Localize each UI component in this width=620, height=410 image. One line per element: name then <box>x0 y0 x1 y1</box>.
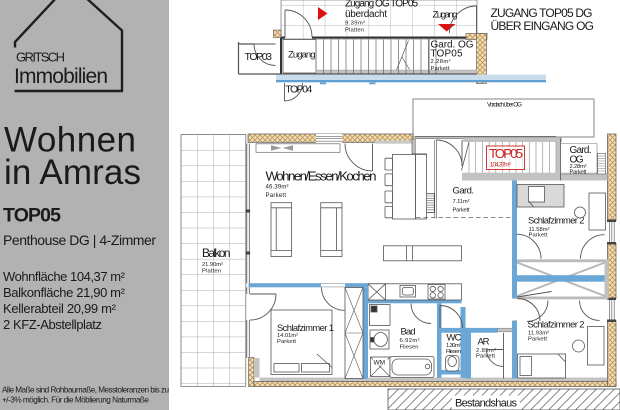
svg-text:Wohnfläche 104,37 m²: Wohnfläche 104,37 m² <box>3 269 126 284</box>
svg-text:TOP05: TOP05 <box>3 205 61 227</box>
svg-text:WM: WM <box>374 360 386 367</box>
svg-text:Parkett: Parkett <box>266 193 287 199</box>
svg-text:Balkonfläche 21,90 m²: Balkonfläche 21,90 m² <box>3 285 126 300</box>
svg-text:6.92m²: 6.92m² <box>400 338 420 344</box>
svg-text:Platten: Platten <box>345 27 364 33</box>
svg-text:Platten: Platten <box>202 268 221 274</box>
svg-text:Parkett: Parkett <box>453 208 470 214</box>
svg-text:Schlafzimmer 1: Schlafzimmer 1 <box>277 322 334 333</box>
svg-text:2.28m²: 2.28m² <box>431 59 451 65</box>
svg-text:Vordach über OG: Vordach über OG <box>487 102 522 109</box>
svg-text:Immobilien: Immobilien <box>14 65 108 88</box>
svg-text:GRITSCH: GRITSCH <box>16 50 66 65</box>
svg-text:überdacht: überdacht <box>345 9 387 20</box>
svg-text:ZUGANG TOP05 DG: ZUGANG TOP05 DG <box>491 6 593 20</box>
svg-text:TOP05: TOP05 <box>431 48 463 59</box>
svg-text:Wohnen/Essen/Kochen: Wohnen/Essen/Kochen <box>266 169 377 184</box>
svg-text:Parkett: Parkett <box>277 339 296 345</box>
svg-text:Parkett: Parkett <box>431 66 450 72</box>
svg-text:Kellerabteil 20,99 m²: Kellerabteil 20,99 m² <box>3 301 117 316</box>
svg-text:2 KFZ-Abstellplatz: 2 KFZ-Abstellplatz <box>3 317 102 332</box>
svg-text:Bad: Bad <box>401 327 416 338</box>
svg-text:+/-3% möglich. Für die Möblier: +/-3% möglich. Für die Möblierung Naturm… <box>2 395 149 404</box>
svg-text:Penthouse DG | 4-Zimmer: Penthouse DG | 4-Zimmer <box>3 232 156 248</box>
svg-text:Gard.: Gard. <box>453 185 475 196</box>
svg-text:46.39m²: 46.39m² <box>266 185 289 191</box>
svg-text:Parkett: Parkett <box>528 336 547 342</box>
svg-text:Fliesen: Fliesen <box>446 349 461 355</box>
svg-text:AR: AR <box>478 337 490 348</box>
svg-text:Parkett: Parkett <box>476 354 495 360</box>
svg-text:Alle Maße sind Rohbaumaße, Mes: Alle Maße sind Rohbaumaße, Messtoleranze… <box>2 386 169 395</box>
svg-text:Fliesen: Fliesen <box>400 344 419 350</box>
svg-text:ÜBER EINGANG OG: ÜBER EINGANG OG <box>491 19 595 33</box>
svg-text:9.39m²: 9.39m² <box>345 20 365 26</box>
svg-text:Balkon: Balkon <box>202 246 231 260</box>
svg-text:21.90m²: 21.90m² <box>202 262 223 268</box>
svg-text:Bestandshaus: Bestandshaus <box>455 398 518 410</box>
svg-text:7.11m²: 7.11m² <box>453 199 470 205</box>
svg-text:Zugang OG TOP05: Zugang OG TOP05 <box>345 0 418 9</box>
svg-text:Schlafzimmer 2: Schlafzimmer 2 <box>528 319 585 330</box>
svg-text:Parkett: Parkett <box>529 233 548 239</box>
svg-text:Zugang: Zugang <box>288 50 316 61</box>
svg-text:WC: WC <box>447 333 462 344</box>
svg-text:Parkett: Parkett <box>570 170 587 176</box>
svg-text:TOP05: TOP05 <box>489 146 523 161</box>
svg-text:104.37m²: 104.37m² <box>490 162 512 169</box>
svg-text:in Amras: in Amras <box>4 153 141 192</box>
